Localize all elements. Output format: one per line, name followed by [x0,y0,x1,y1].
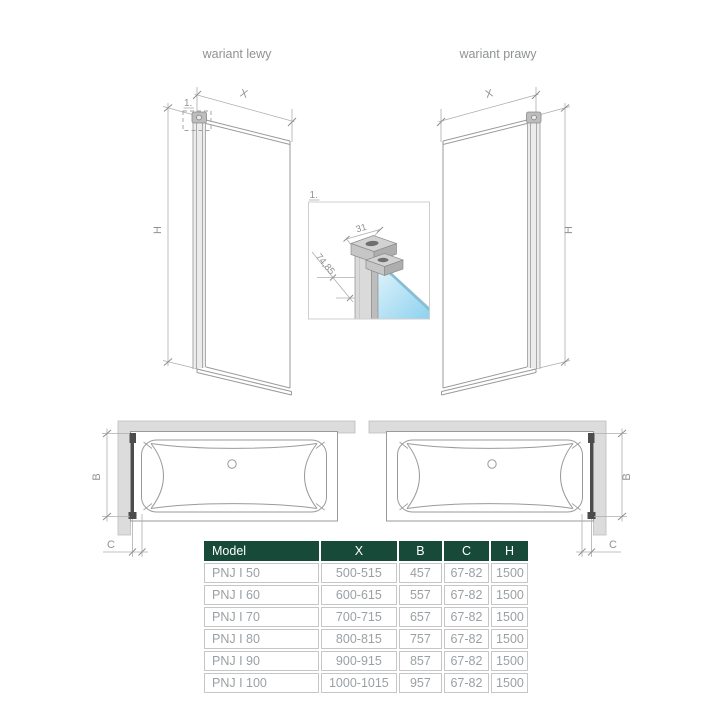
left-bathtub-plan: B C [91,421,355,557]
header-h: H [491,541,528,561]
table-row: PNJ I 80800-81575767-821500 [204,629,528,649]
technical-spec-sheet: .ln { stroke:#9a9a9a; stroke-width:1; fi… [0,0,720,720]
right-variant-title: wariant prawy [458,47,537,61]
dim-b-right: B [621,473,633,480]
cell-x: 800-815 [321,629,397,649]
dim-h-left: H [152,226,164,234]
cell-c: 67-82 [444,629,489,649]
table-row: PNJ I 90900-91585767-821500 [204,651,528,671]
cell-x: 600-615 [321,585,397,605]
table-header-row: Model X B C H [204,541,528,561]
cell-b: 557 [399,585,442,605]
right-panel-drawing: X H [437,87,575,395]
detail-box: 1. [309,190,432,319]
table-row: PNJ I 70700-71565767-821500 [204,607,528,627]
cell-model: PNJ I 50 [204,563,319,583]
cell-x: 500-515 [321,563,397,583]
table-row: PNJ I 1001000-101595767-821500 [204,673,528,693]
dim-h-right: H [563,226,575,234]
detail-callout-label-box: 1. [310,190,318,201]
cell-x: 1000-1015 [321,673,397,693]
cell-model: PNJ I 60 [204,585,319,605]
detail-callout-label-left: 1. [184,98,192,109]
table-row: PNJ I 60600-61555767-821500 [204,585,528,605]
header-b: B [399,541,442,561]
left-variant-title: wariant lewy [202,47,273,61]
cell-b: 657 [399,607,442,627]
cell-b: 757 [399,629,442,649]
cell-b: 857 [399,651,442,671]
cell-c: 67-82 [444,607,489,627]
dim-x-right: X [484,87,495,101]
cell-c: 67-82 [444,585,489,605]
cell-h: 1500 [491,563,528,583]
cell-c: 67-82 [444,563,489,583]
cell-x: 900-915 [321,651,397,671]
spec-table-body: PNJ I 50500-51545767-821500PNJ I 60600-6… [204,563,528,693]
cell-h: 1500 [491,629,528,649]
spec-table: Model X B C H PNJ I 50500-51545767-82150… [202,539,530,695]
cell-c: 67-82 [444,673,489,693]
header-model: Model [204,541,319,561]
left-panel-drawing: X H 1. [152,87,296,395]
dim-c-right: C [609,539,617,551]
dim-c-left: C [107,539,115,551]
dim-x-left: X [239,87,250,101]
cell-x: 700-715 [321,607,397,627]
cell-b: 457 [399,563,442,583]
right-bathtub-plan: B C [369,421,633,557]
cell-model: PNJ I 80 [204,629,319,649]
header-x: X [321,541,397,561]
cell-h: 1500 [491,585,528,605]
drain [488,460,496,468]
table-row: PNJ I 50500-51545767-821500 [204,563,528,583]
drain [228,460,236,468]
dim-b-left: B [91,473,103,480]
cell-b: 957 [399,673,442,693]
header-c: C [444,541,489,561]
cell-model: PNJ I 100 [204,673,319,693]
cell-h: 1500 [491,673,528,693]
cell-model: PNJ I 70 [204,607,319,627]
cell-h: 1500 [491,607,528,627]
cell-c: 67-82 [444,651,489,671]
cell-h: 1500 [491,651,528,671]
cell-model: PNJ I 90 [204,651,319,671]
